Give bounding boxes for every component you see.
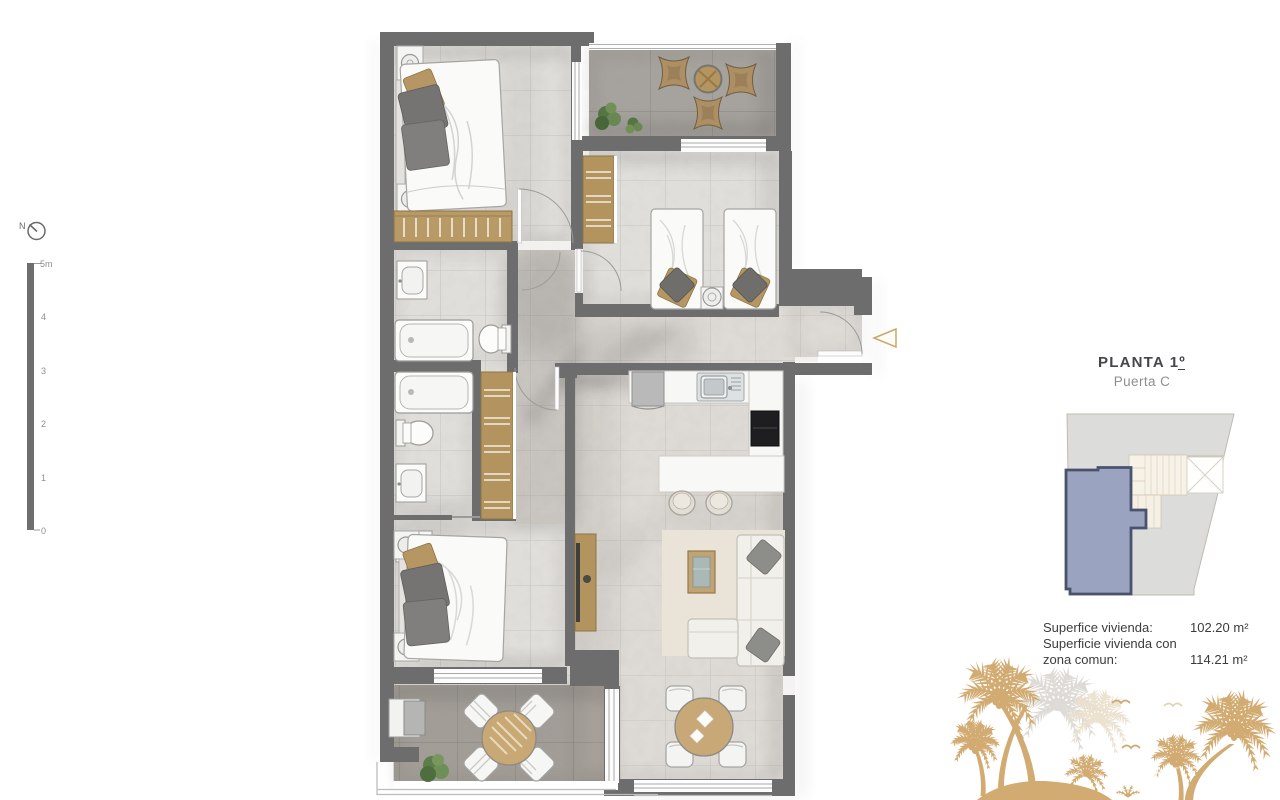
svg-text:3: 3 xyxy=(41,366,46,376)
svg-text:102.20 m²: 102.20 m² xyxy=(1190,620,1249,635)
svg-text:N: N xyxy=(19,221,26,231)
svg-text:Superficie vivienda con: Superficie vivienda con xyxy=(1043,636,1177,651)
svg-text:Puerta C: Puerta C xyxy=(1114,374,1170,389)
svg-text:PLANTA 1º: PLANTA 1º xyxy=(1098,354,1186,371)
svg-text:114.21 m²: 114.21 m² xyxy=(1190,652,1248,667)
svg-text:1: 1 xyxy=(41,473,46,483)
svg-text:zona comun:: zona comun: xyxy=(1043,652,1117,667)
svg-text:Superfice vivienda:: Superfice vivienda: xyxy=(1043,620,1153,635)
svg-text:4: 4 xyxy=(41,312,46,322)
svg-text:2: 2 xyxy=(41,419,46,429)
svg-text:S E A: S E A xyxy=(1042,766,1087,780)
svg-text:0: 0 xyxy=(41,526,46,536)
svg-text:A T E: A T E xyxy=(1155,765,1199,779)
svg-text:5m: 5m xyxy=(40,259,53,269)
